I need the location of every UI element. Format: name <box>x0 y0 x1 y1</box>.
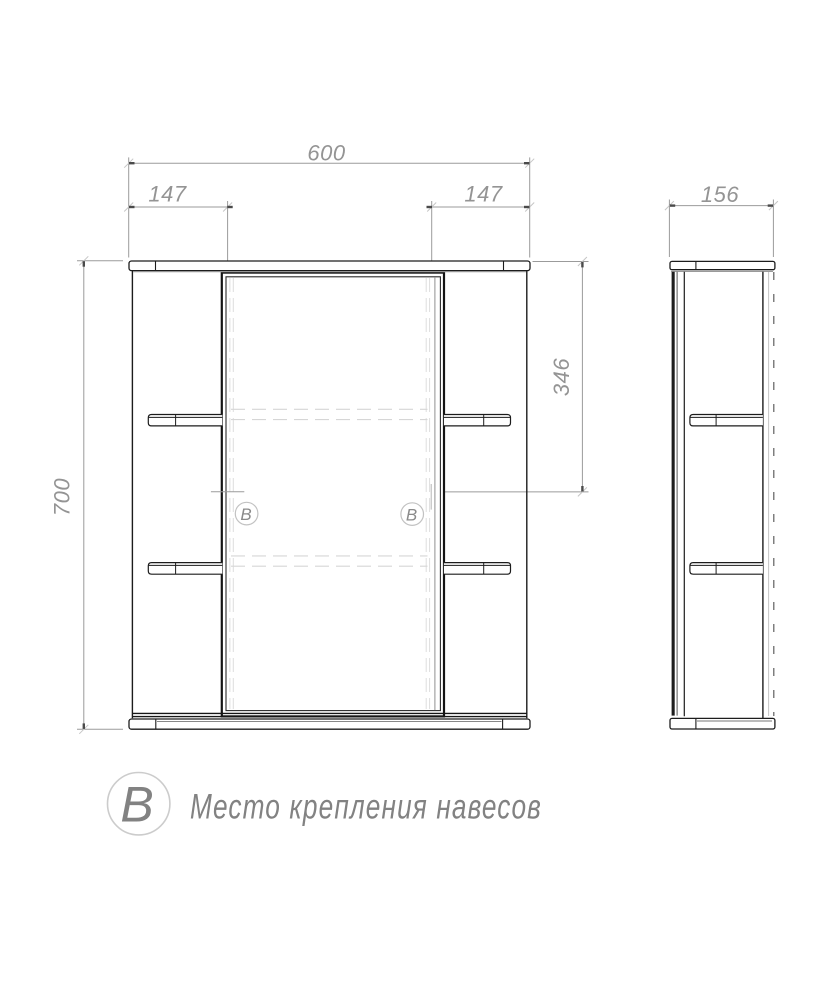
svg-text:600: 600 <box>307 141 345 166</box>
svg-text:B: B <box>406 505 417 524</box>
svg-text:B: B <box>120 777 153 833</box>
svg-text:B: B <box>240 505 251 524</box>
svg-text:700: 700 <box>50 478 75 516</box>
svg-text:Место крепления навесов: Место крепления навесов <box>190 788 542 827</box>
svg-text:147: 147 <box>148 182 186 207</box>
svg-text:156: 156 <box>701 182 739 207</box>
svg-text:346: 346 <box>549 358 574 396</box>
svg-text:147: 147 <box>464 182 502 207</box>
